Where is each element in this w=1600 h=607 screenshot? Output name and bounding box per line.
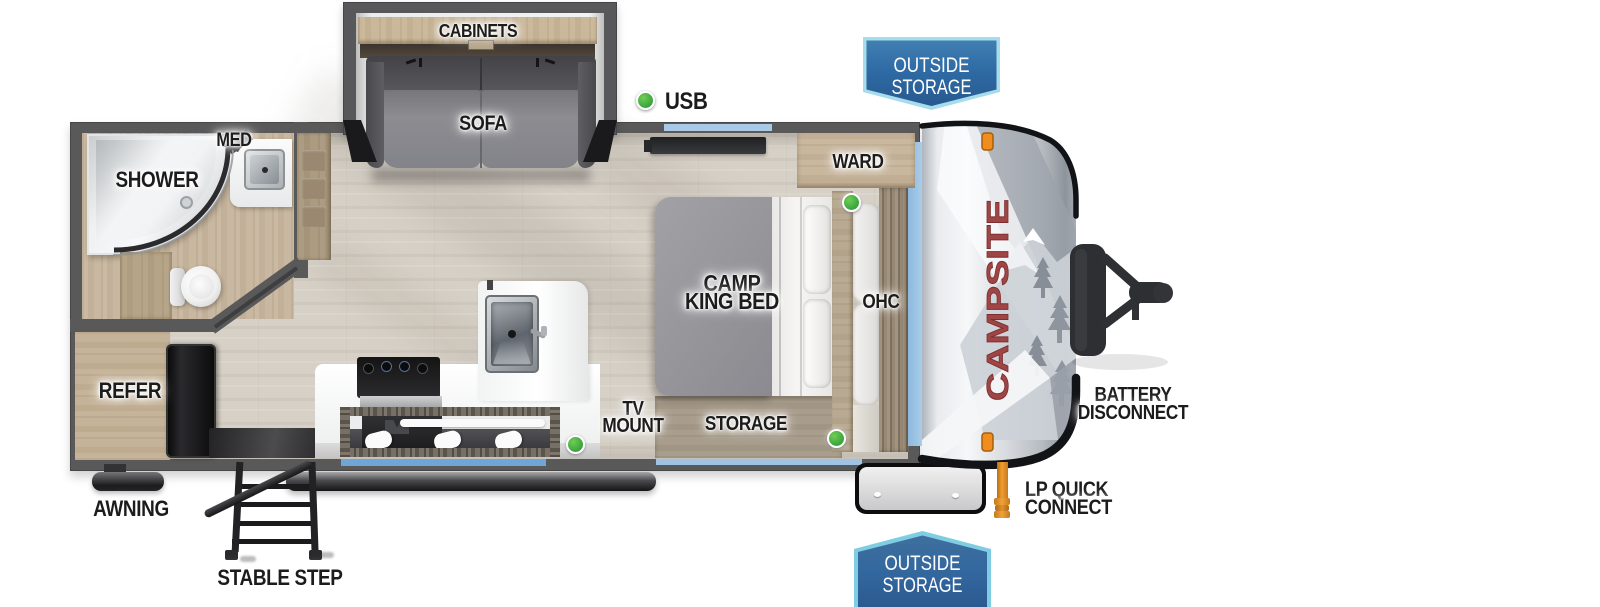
svg-text:STORAGE: STORAGE (892, 76, 972, 99)
svg-text:OUTSIDE: OUTSIDE (885, 552, 961, 575)
svg-text:STORAGE: STORAGE (883, 574, 963, 597)
svg-text:CAMPSITE: CAMPSITE (980, 199, 1015, 401)
svg-text:OUTSIDE: OUTSIDE (894, 54, 970, 77)
